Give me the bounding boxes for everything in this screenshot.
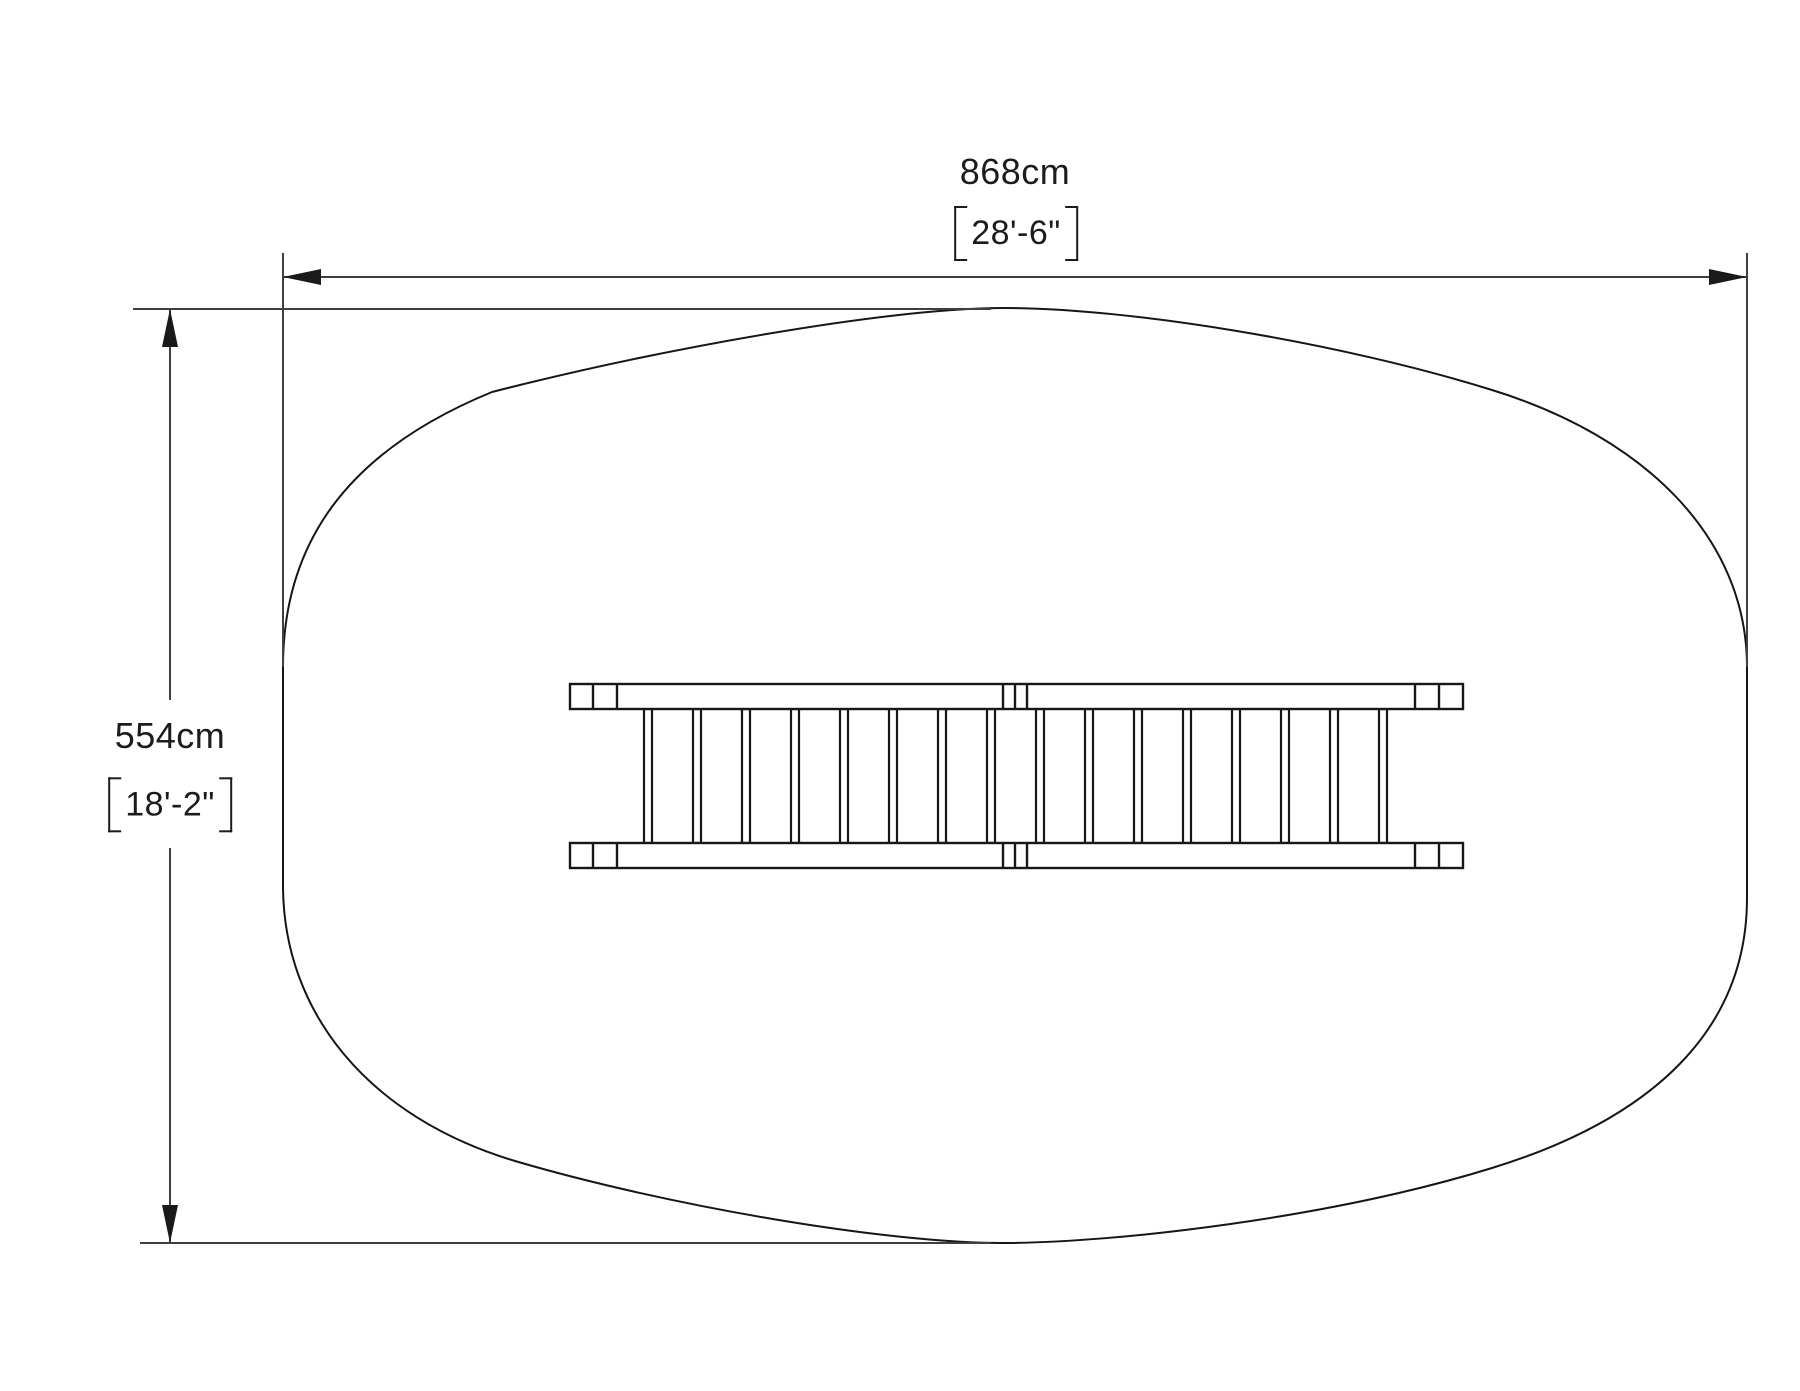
width-dimension-imperial-label: 28'-6"	[954, 206, 1078, 261]
ladder-rung	[1330, 709, 1338, 843]
width-arrow-right	[1709, 269, 1747, 285]
ladder-rung	[1085, 709, 1093, 843]
width-dimension-line	[283, 269, 1747, 285]
ladder-rung	[1183, 709, 1191, 843]
height-dimension-line	[162, 309, 178, 1243]
ladder-rung	[938, 709, 946, 843]
ladder-rung	[742, 709, 750, 843]
plan-view-drawing	[0, 0, 1800, 1391]
ladder-bottom-rail	[570, 843, 1463, 868]
width-arrow-left	[283, 269, 321, 285]
ladder-rung	[840, 709, 848, 843]
ladder-rung	[693, 709, 701, 843]
ladder-rung	[1036, 709, 1044, 843]
ladder-top-rail	[570, 684, 1463, 709]
height-dimension-metric-label: 554cm	[115, 716, 226, 756]
ladder-rung	[1379, 709, 1387, 843]
ladder-rungs	[644, 709, 1387, 843]
ladder-rung	[987, 709, 995, 843]
ladder-rung	[1281, 709, 1289, 843]
technical-drawing-page: 868cm 28'-6" 554cm 18'-2"	[0, 0, 1800, 1391]
ladder-rung	[889, 709, 897, 843]
use-zone-outline	[283, 308, 1747, 1243]
height-arrow-down	[162, 1205, 178, 1243]
ladder-rung	[644, 709, 652, 843]
ladder-rung	[1232, 709, 1240, 843]
width-dimension-metric-label: 868cm	[960, 152, 1071, 192]
ladder-rung	[791, 709, 799, 843]
overhead-ladder	[570, 684, 1463, 868]
ladder-rung	[1134, 709, 1142, 843]
ladder-rail-dividers	[593, 684, 1439, 868]
height-dimension-imperial-label: 18'-2"	[108, 777, 232, 832]
height-arrow-up	[162, 309, 178, 347]
